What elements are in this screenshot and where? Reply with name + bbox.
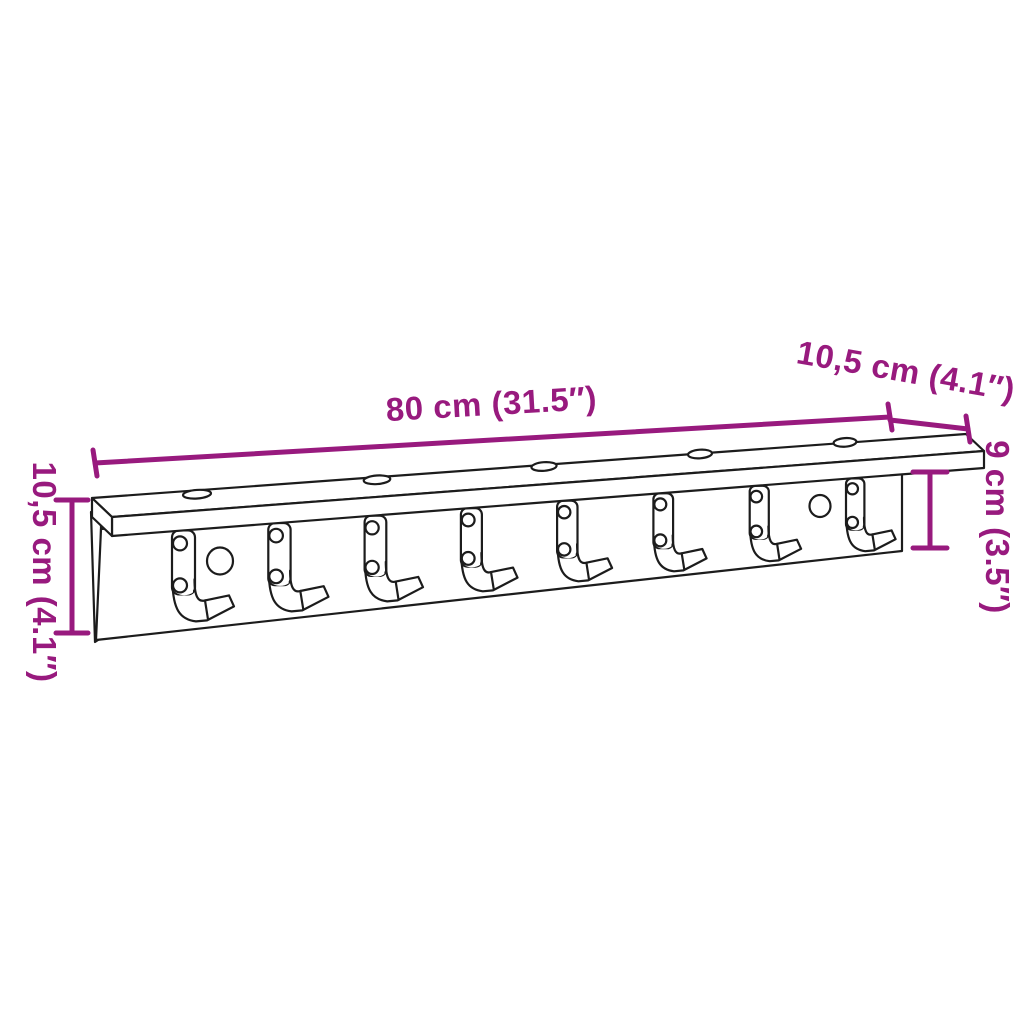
hook-screw-center (274, 533, 278, 537)
hook-screw-center (466, 556, 470, 560)
hook-screw-center (658, 502, 662, 506)
hook-screw-center (658, 538, 662, 542)
dimension-depth-label: 10,5 cm (4.1″) (794, 333, 1018, 408)
hook-screw-center (754, 530, 758, 534)
coat-rack-diagram-canvas: 80 cm (31.5″) 10,5 cm (4.1″) 9 cm (3.5″)… (0, 0, 1024, 1024)
dimension-length-tick-left (93, 450, 97, 476)
hook-screw-center (178, 541, 183, 546)
hook-screw-center (562, 547, 566, 551)
hook-screw-center (754, 495, 758, 499)
dimension-length-label: 80 cm (31.5″) (385, 379, 598, 428)
shelf-screw-hole (833, 437, 856, 447)
hook-screw-center (178, 583, 183, 588)
hook-screw-center (466, 518, 470, 522)
hook-screw-center (562, 510, 566, 514)
shelf-screw-hole (531, 461, 557, 471)
dimension-height-right-label: 9 cm (3.5″) (979, 440, 1016, 614)
dimension-depth-line (890, 420, 968, 429)
dimension-height-left-label: 10,5 cm (4.1″) (26, 462, 63, 683)
shelf-screw-hole (688, 449, 713, 459)
product-dimension-diagram: 80 cm (31.5″) 10,5 cm (4.1″) 9 cm (3.5″)… (0, 0, 1024, 1024)
hook-screw-center (851, 487, 855, 491)
panel-hole-left (207, 548, 233, 575)
hook-screw-center (370, 526, 374, 530)
panel-hole-right (810, 495, 831, 517)
dimension-height-left: 10,5 cm (4.1″) (26, 462, 88, 683)
hook-screw-center (851, 521, 855, 525)
hook-screw-center (274, 574, 278, 578)
dimension-depth: 10,5 cm (4.1″) (794, 333, 1018, 442)
hook-screw-center (370, 565, 374, 569)
dimension-length-tick-right (888, 404, 892, 430)
